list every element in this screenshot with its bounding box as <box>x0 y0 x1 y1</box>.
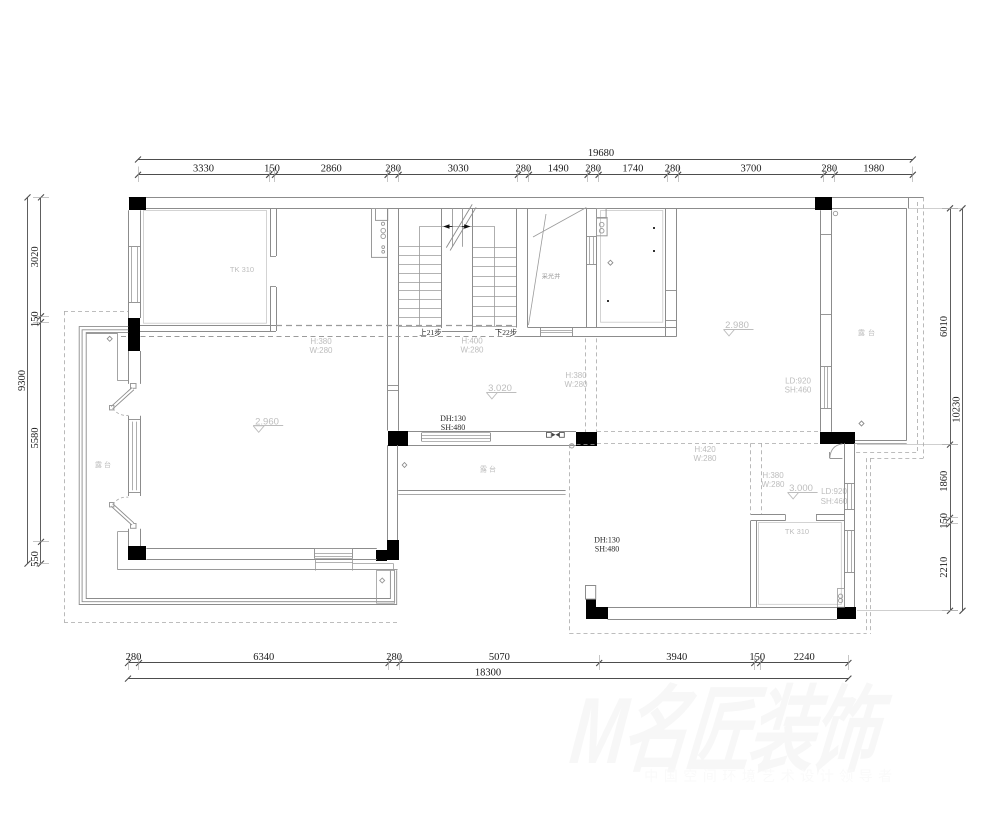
svg-text:2860: 2860 <box>321 164 342 175</box>
svg-text:W:280: W:280 <box>310 346 334 355</box>
svg-text:280: 280 <box>126 652 142 663</box>
svg-text:TK 310: TK 310 <box>785 527 809 536</box>
svg-text:TK 310: TK 310 <box>230 265 254 274</box>
svg-text:1740: 1740 <box>622 164 643 175</box>
svg-text:280: 280 <box>516 164 532 175</box>
svg-text:150: 150 <box>30 311 41 327</box>
svg-text:6010: 6010 <box>939 316 950 337</box>
svg-text:5580: 5580 <box>30 428 41 449</box>
svg-text:露台: 露台 <box>480 465 498 474</box>
svg-text:SH:480: SH:480 <box>595 545 619 554</box>
svg-text:5070: 5070 <box>489 652 510 663</box>
svg-text:H:380: H:380 <box>762 471 784 480</box>
svg-text:LD:920: LD:920 <box>785 377 811 386</box>
svg-text:1490: 1490 <box>548 164 569 175</box>
svg-text:3.020: 3.020 <box>488 383 512 394</box>
svg-text:W:280: W:280 <box>762 480 786 489</box>
svg-text:3940: 3940 <box>666 652 687 663</box>
svg-text:3330: 3330 <box>193 164 214 175</box>
svg-text:2.980: 2.980 <box>725 320 749 331</box>
svg-text:280: 280 <box>665 164 681 175</box>
svg-text:DH:130: DH:130 <box>440 414 466 423</box>
svg-text:19680: 19680 <box>588 148 614 159</box>
svg-text:550: 550 <box>30 551 41 567</box>
svg-text:280: 280 <box>386 652 402 663</box>
svg-text:1980: 1980 <box>863 164 884 175</box>
svg-text:280: 280 <box>821 164 837 175</box>
svg-text:SH:460: SH:460 <box>821 497 848 506</box>
svg-text:W:280: W:280 <box>461 346 485 355</box>
svg-text:H:380: H:380 <box>565 371 587 380</box>
svg-text:W:280: W:280 <box>694 454 718 463</box>
svg-text:SH:480: SH:480 <box>441 423 465 432</box>
svg-text:150: 150 <box>939 513 950 529</box>
svg-text:H:380: H:380 <box>310 337 332 346</box>
svg-text:露台: 露台 <box>95 460 113 469</box>
svg-text:DH:130: DH:130 <box>594 536 620 545</box>
svg-text:6340: 6340 <box>253 652 274 663</box>
svg-text:1860: 1860 <box>939 471 950 492</box>
svg-text:150: 150 <box>749 652 765 663</box>
svg-text:2240: 2240 <box>794 652 815 663</box>
svg-text:9300: 9300 <box>17 370 28 391</box>
svg-text:2.960: 2.960 <box>255 416 279 427</box>
svg-text:3020: 3020 <box>30 246 41 267</box>
svg-text:上21步: 上21步 <box>419 328 442 337</box>
svg-text:3700: 3700 <box>740 164 761 175</box>
svg-text:W:280: W:280 <box>565 380 589 389</box>
svg-text:280: 280 <box>585 164 601 175</box>
svg-text:150: 150 <box>264 164 280 175</box>
svg-text:露台: 露台 <box>858 328 878 337</box>
svg-text:3030: 3030 <box>448 164 469 175</box>
svg-text:H:400: H:400 <box>461 337 483 346</box>
svg-text:LD:920: LD:920 <box>821 487 847 496</box>
svg-text:SH:460: SH:460 <box>785 386 812 395</box>
svg-text:18300: 18300 <box>475 668 501 679</box>
svg-text:采光井: 采光井 <box>542 273 561 281</box>
svg-text:H:420: H:420 <box>694 445 716 454</box>
svg-text:下22步: 下22步 <box>495 328 518 337</box>
svg-text:中国空间环境艺术设计领导者: 中国空间环境艺术设计领导者 <box>644 768 898 784</box>
svg-text:3.000: 3.000 <box>789 483 813 494</box>
svg-text:10230: 10230 <box>952 396 963 422</box>
svg-text:280: 280 <box>385 164 401 175</box>
svg-text:2210: 2210 <box>939 557 950 578</box>
